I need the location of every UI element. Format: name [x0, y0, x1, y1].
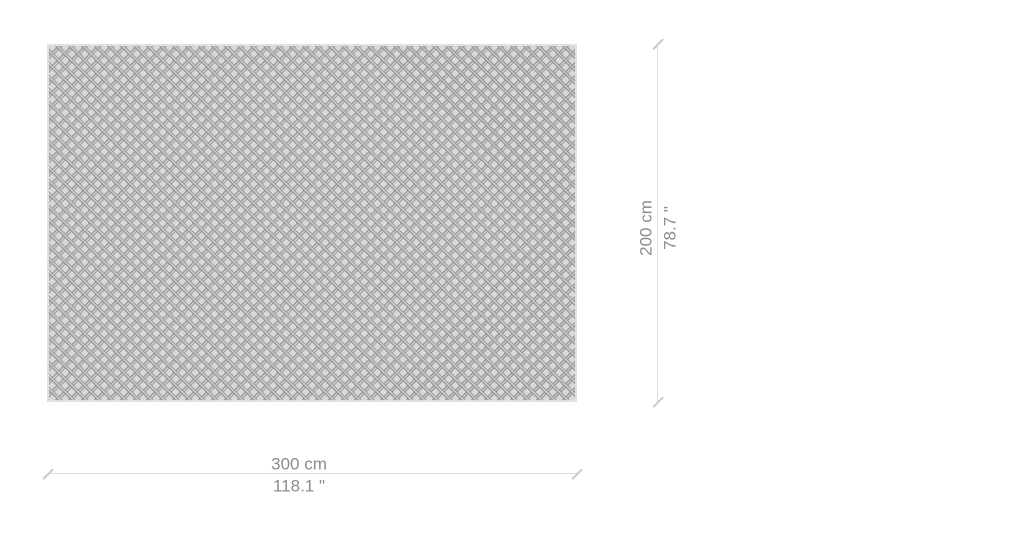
rug-swatch	[47, 44, 577, 402]
rug-size-diagram: 200 cm 78.7 " 300 cm 118.1 "	[0, 0, 1024, 544]
height-cm-label: 200 cm	[638, 200, 655, 256]
width-inches-label: 118.1 "	[273, 478, 325, 495]
height-inches-label: 78.7 "	[662, 206, 679, 250]
width-cm-label: 300 cm	[271, 456, 327, 473]
height-dimension-line	[657, 44, 658, 402]
